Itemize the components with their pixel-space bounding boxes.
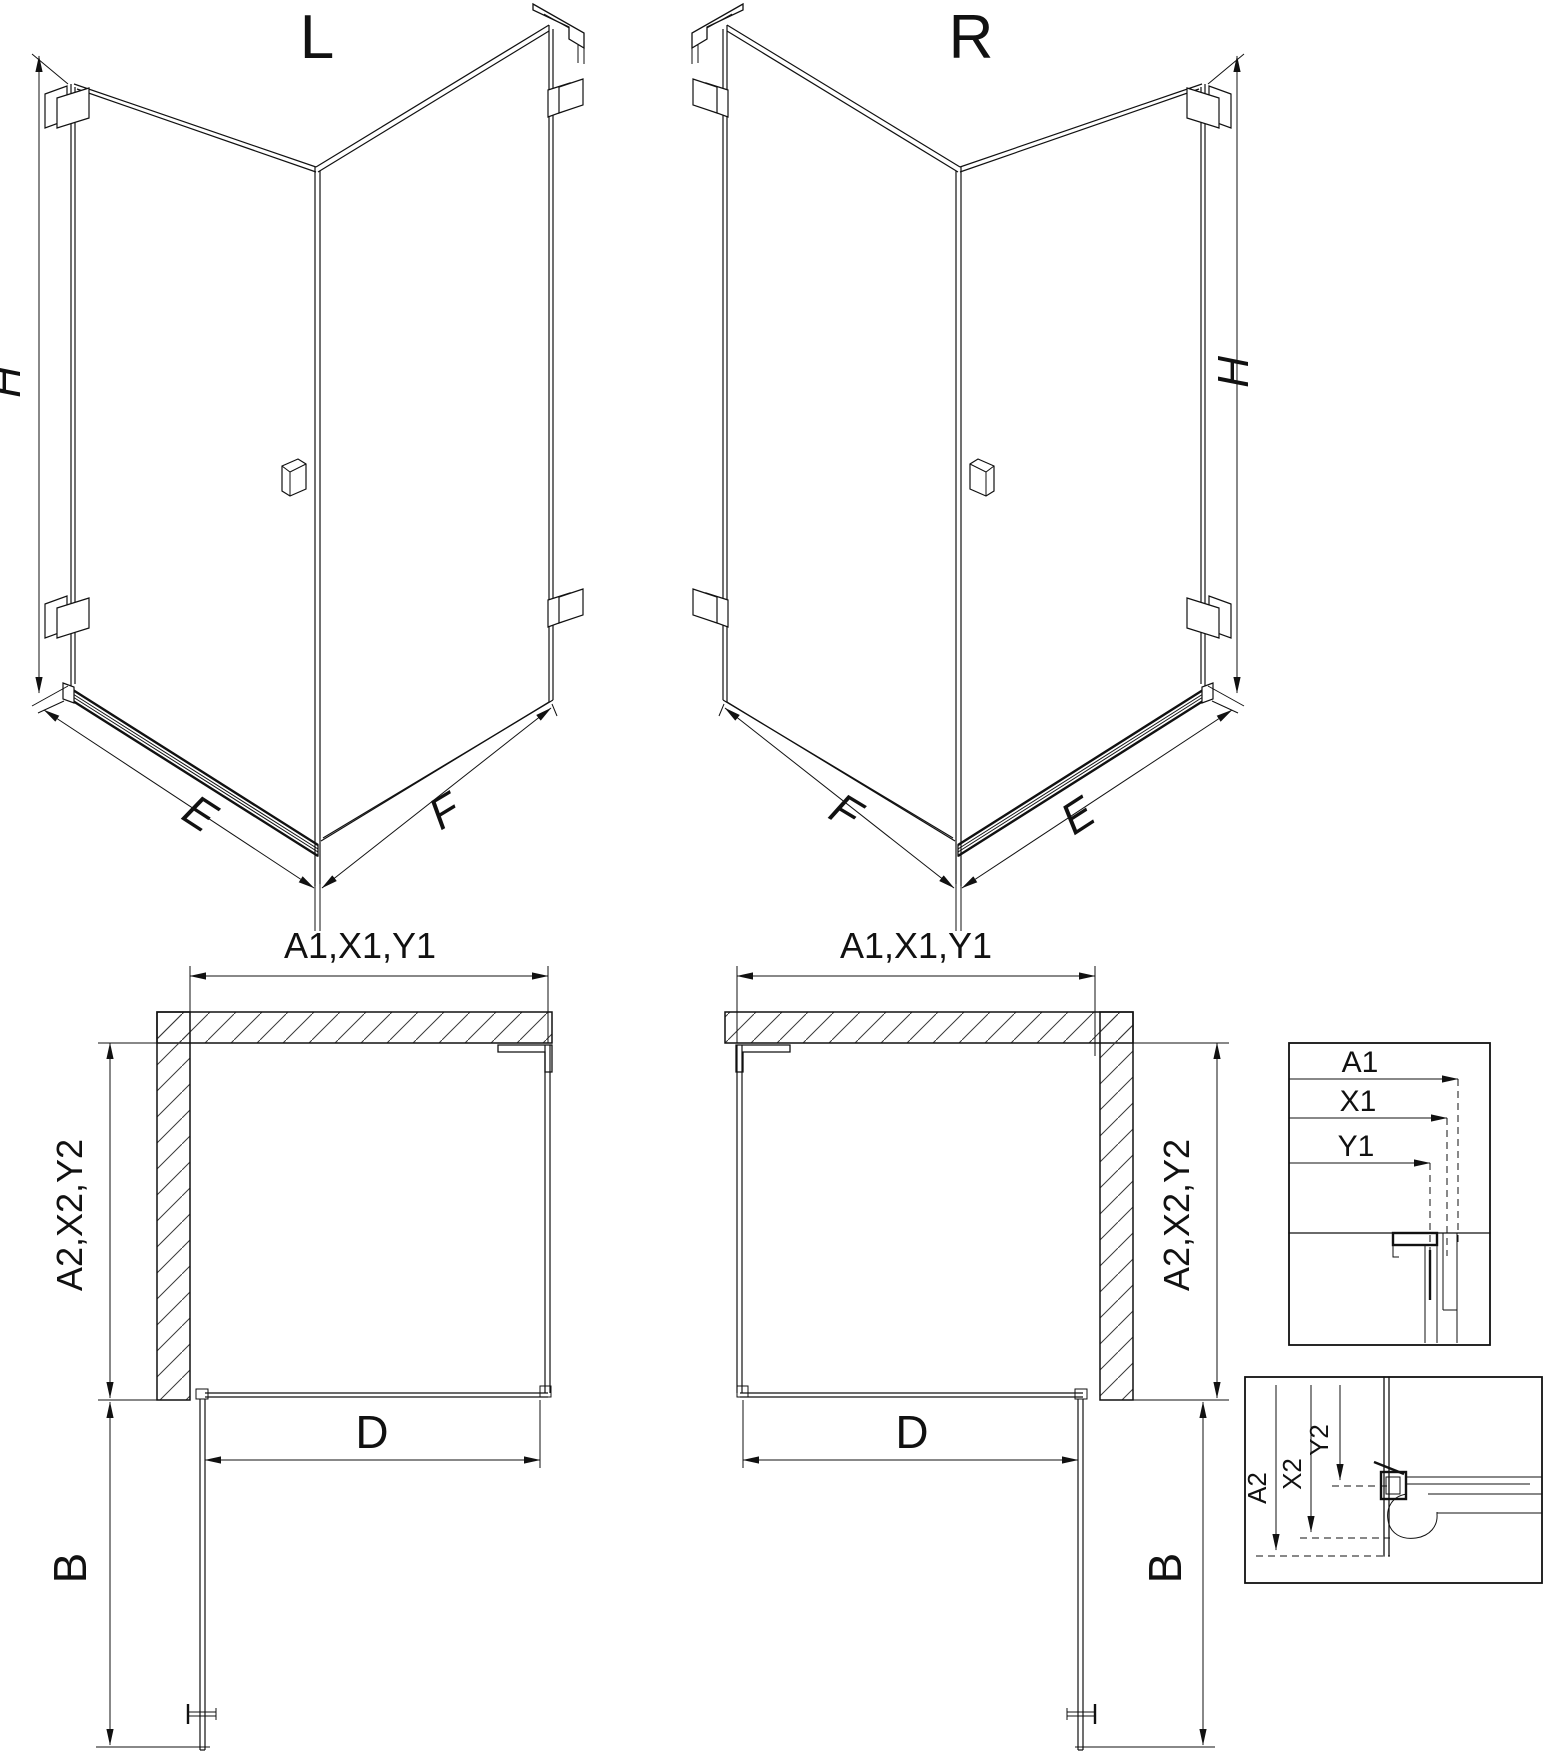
- top-corner-bracket: [692, 4, 743, 64]
- depth-dim-label: A2,X2,Y2: [49, 1139, 90, 1291]
- door-width-dimension: E: [38, 701, 314, 888]
- wall-left: [157, 1012, 190, 1400]
- door-panel-glass: [960, 84, 1205, 686]
- detail-a1-label: A1: [1342, 1046, 1379, 1079]
- corner-post: [956, 167, 961, 931]
- door-side-label: E: [1052, 787, 1104, 844]
- height-dim-label: H: [1209, 356, 1258, 388]
- wall-top: [157, 1012, 552, 1043]
- door-hinge-bottom: [45, 596, 89, 638]
- depth-dim-label: A2,X2,Y2: [1156, 1139, 1197, 1291]
- iso-right-title: R: [949, 3, 994, 72]
- door-swing-label: B: [44, 1553, 96, 1584]
- wall-profile-section: [1393, 1233, 1457, 1343]
- wall-top: [725, 1012, 1133, 1043]
- detail-y1-label: Y1: [1338, 1130, 1375, 1163]
- fixed-side-label: F: [821, 784, 871, 841]
- iso-view-right: R: [692, 3, 1258, 931]
- door-handle-plan: [188, 1704, 216, 1724]
- door-swing-dimension: B: [1075, 1402, 1215, 1747]
- reference-dashes: [1430, 1079, 1458, 1292]
- width-dim-label: A1,X1,Y1: [284, 925, 436, 966]
- detail-box-width: A1 X1 Y1: [1289, 1043, 1490, 1345]
- iso-view-left: L: [0, 3, 584, 931]
- door-handle: [282, 459, 306, 496]
- technical-drawing-page: L: [0, 0, 1561, 1756]
- wall-right: [1100, 1012, 1133, 1400]
- threshold-profile-section: [1374, 1377, 1542, 1556]
- sill-end-cap: [63, 683, 74, 703]
- wall-bracket-plan: [736, 1045, 790, 1072]
- fixed-side-label: F: [420, 783, 470, 840]
- wall-bracket-plan: [498, 1045, 552, 1072]
- door-handle: [970, 459, 994, 496]
- door-swing-dimension: B: [44, 1402, 210, 1747]
- open-door-plan: [188, 1389, 216, 1750]
- door-handle-plan: [1067, 1704, 1095, 1724]
- door-panel-glass: [71, 84, 316, 686]
- shower-enclosure-diagram: L: [0, 0, 1561, 1756]
- detail-x2-label: X2: [1277, 1458, 1307, 1490]
- door-hinge-top: [1187, 86, 1231, 128]
- door-width-dimension: E: [962, 701, 1238, 888]
- sill-end-cap: [1202, 683, 1213, 703]
- tray-edge-curve: [1388, 1494, 1437, 1538]
- door-width-dimension-plan: D: [205, 1400, 540, 1468]
- depth-variant-arrows: A2 X2 Y2: [1242, 1385, 1340, 1550]
- fixed-width-dimension: F: [719, 704, 954, 888]
- fixed-width-dimension: F: [322, 704, 557, 888]
- depth-dimension: A2,X2,Y2: [49, 1043, 157, 1400]
- fixed-panel-plan: [205, 1045, 551, 1397]
- detail-x1-label: X1: [1340, 1085, 1377, 1118]
- door-width-dimension-plan: D: [743, 1400, 1078, 1468]
- open-door-plan: [1067, 1389, 1095, 1750]
- fixed-panel-glass: [316, 25, 553, 841]
- detail-box-depth: A2 X2 Y2: [1242, 1377, 1542, 1583]
- fixed-panel-glass: [723, 25, 960, 841]
- fixed-panel-plan: [737, 1045, 1083, 1397]
- width-dim-label: A1,X1,Y1: [840, 925, 992, 966]
- top-corner-bracket: [533, 4, 584, 64]
- door-width-label: D: [355, 1406, 388, 1458]
- door-hinge-bottom: [1187, 596, 1231, 638]
- height-dim-label: H: [0, 366, 30, 398]
- iso-left-title: L: [300, 3, 334, 72]
- door-width-label: D: [895, 1406, 928, 1458]
- depth-dimension: A2,X2,Y2: [1133, 1043, 1229, 1400]
- door-hinge-top: [45, 86, 89, 128]
- door-swing-label: B: [1139, 1553, 1191, 1584]
- corner-post: [315, 167, 320, 931]
- detail-a2-label: A2: [1242, 1472, 1272, 1504]
- plan-view-right: A1,X1,Y1 A2,X2,Y2: [725, 925, 1229, 1750]
- plan-view-left: A1,X1,Y1 A2,X2,Y2: [44, 925, 552, 1750]
- detail-y2-label: Y2: [1304, 1424, 1334, 1456]
- width-variant-arrows: A1 X1 Y1: [1289, 1046, 1458, 1163]
